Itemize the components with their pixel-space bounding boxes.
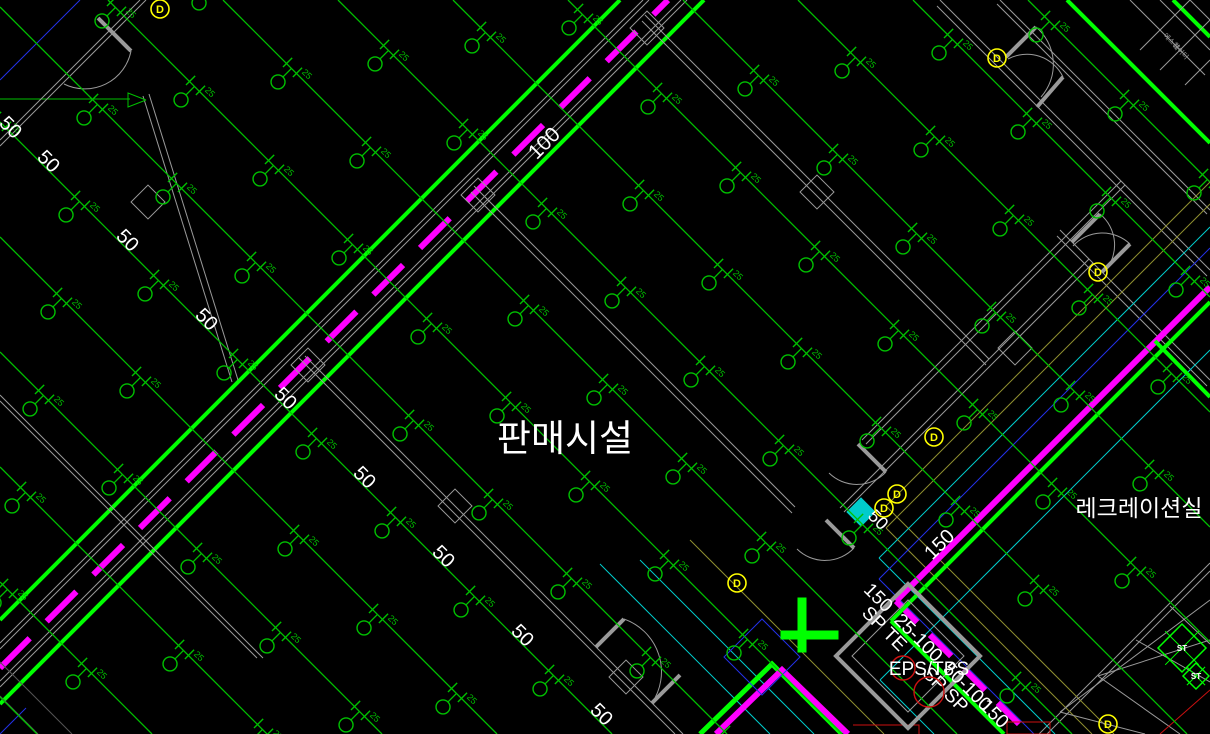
drawing-background [0,0,1210,734]
room-label-sales-facility: 판매시설 [497,418,633,459]
drawing-polygon [798,598,806,652]
d-marker-letter: D [1094,267,1102,279]
cad-drawing-canvas[interactable]: 2525252525252525252525252525252525252525… [0,0,1210,734]
cad-viewport: 2525252525252525252525252525252525252525… [0,0,1210,734]
d-marker-letter: D [733,578,741,590]
drawing-polygon [781,631,838,639]
room-label-recreation: 레크레이션실 [1076,495,1203,521]
d-marker-letter: D [993,53,1001,65]
d-marker-letter: D [893,489,901,501]
duct-st-label: ST [1191,672,1201,681]
d-marker-letter: D [880,503,888,515]
shaft-label-eps-tps: EPS/TPS [889,659,969,680]
d-marker-letter: D [930,432,938,444]
duct-st-label: ST [1177,644,1187,653]
d-marker-letter: D [1104,719,1112,731]
d-marker-letter: D [156,4,164,16]
